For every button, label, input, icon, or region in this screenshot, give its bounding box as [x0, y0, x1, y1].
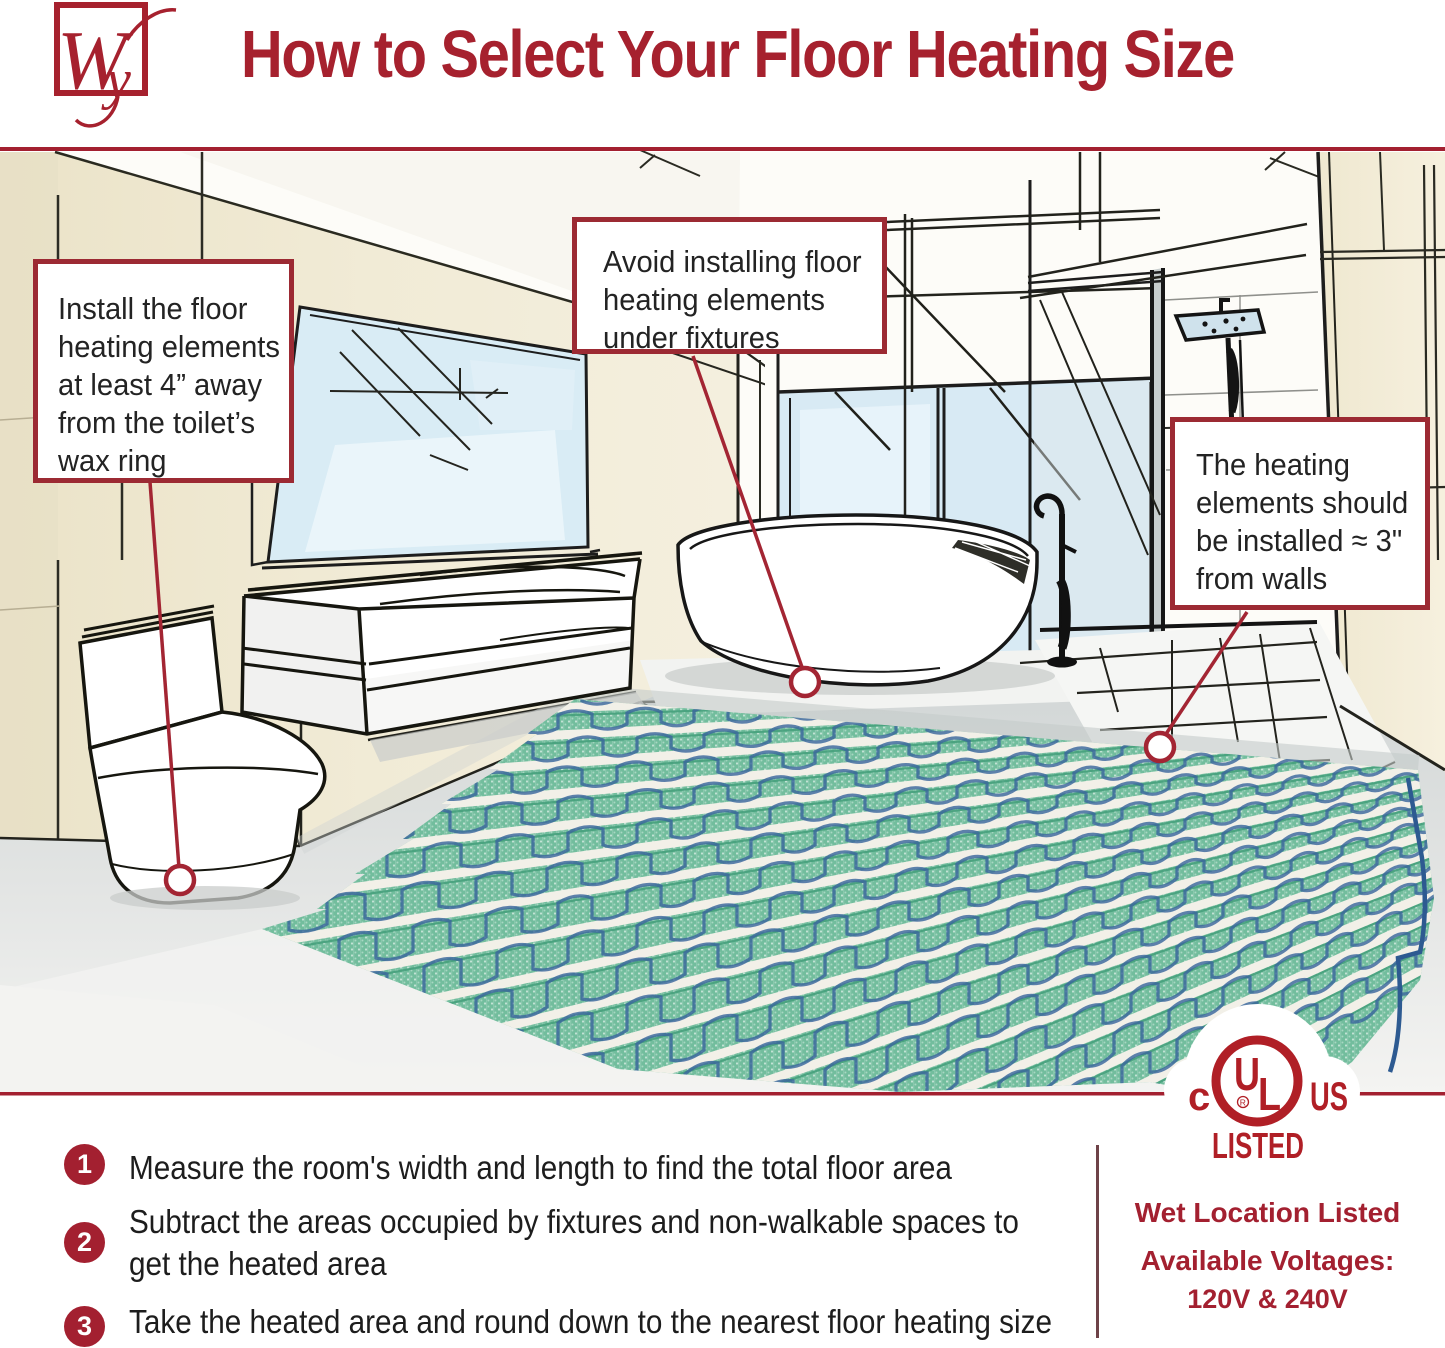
svg-text:LISTED: LISTED: [1212, 1125, 1304, 1166]
svg-text:L: L: [1258, 1068, 1281, 1120]
svg-text:c: c: [1188, 1075, 1210, 1119]
svg-text:U: U: [1234, 1048, 1260, 1100]
svg-text:US: US: [1310, 1075, 1348, 1119]
svg-text:R: R: [1240, 1098, 1246, 1108]
